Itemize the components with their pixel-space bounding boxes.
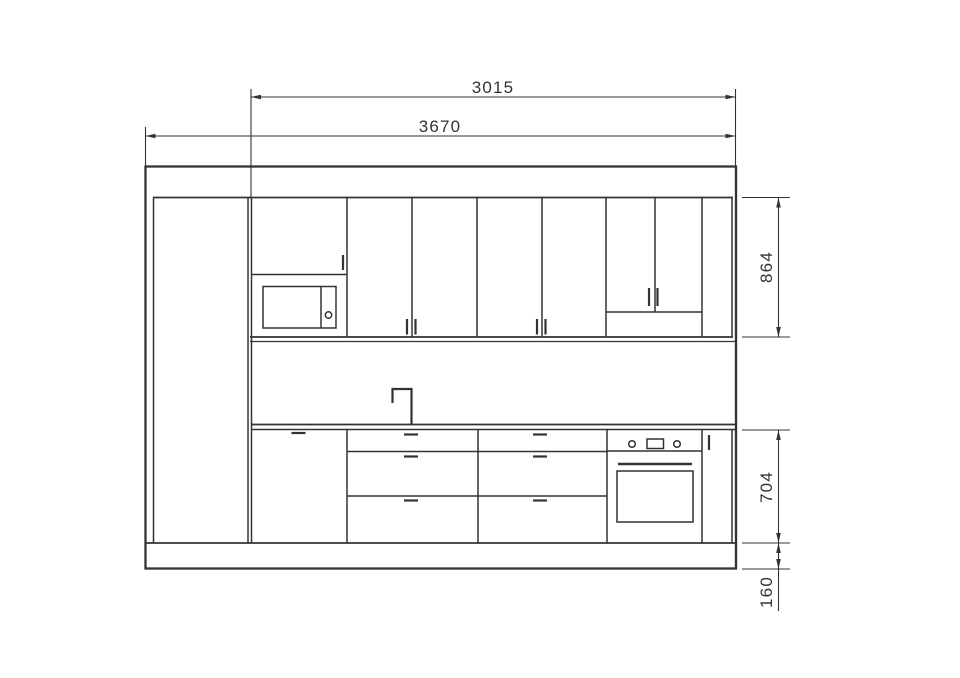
oven-knob-icon: [674, 441, 681, 448]
microwave-body: [263, 287, 336, 329]
kitchen-elevation-drawing: 3015 3670 864 704 160: [0, 0, 960, 678]
dimension-label-base-height: 704: [757, 471, 776, 503]
oven-display: [647, 439, 664, 449]
oven-door-window: [617, 471, 693, 522]
base-cabinets: [292, 430, 733, 543]
dimension-label-plinth-height: 160: [757, 576, 776, 608]
built-in-oven: [607, 439, 702, 522]
room-wall-outline: [146, 167, 737, 569]
tall-cabinet: [154, 198, 252, 544]
dimension-label-run-width: 3015: [472, 78, 515, 97]
microwave: [263, 287, 336, 329]
elevation-sheet: 3015 3670 864 704 160: [0, 0, 960, 678]
microwave-knob-icon: [325, 312, 331, 318]
wall-cabinet-doors: [153, 198, 735, 342]
dimension-label-upper-height: 864: [757, 251, 776, 283]
worktop: [252, 425, 736, 430]
wall-outline-rect: [146, 167, 737, 569]
oven-knob-icon: [629, 441, 636, 448]
mixer-tap: [393, 389, 412, 424]
dimension-label-total-width: 3670: [419, 117, 462, 136]
mixer-tap-outline: [393, 389, 412, 424]
dimension-annotations: 3015 3670 864 704 160: [146, 78, 791, 611]
